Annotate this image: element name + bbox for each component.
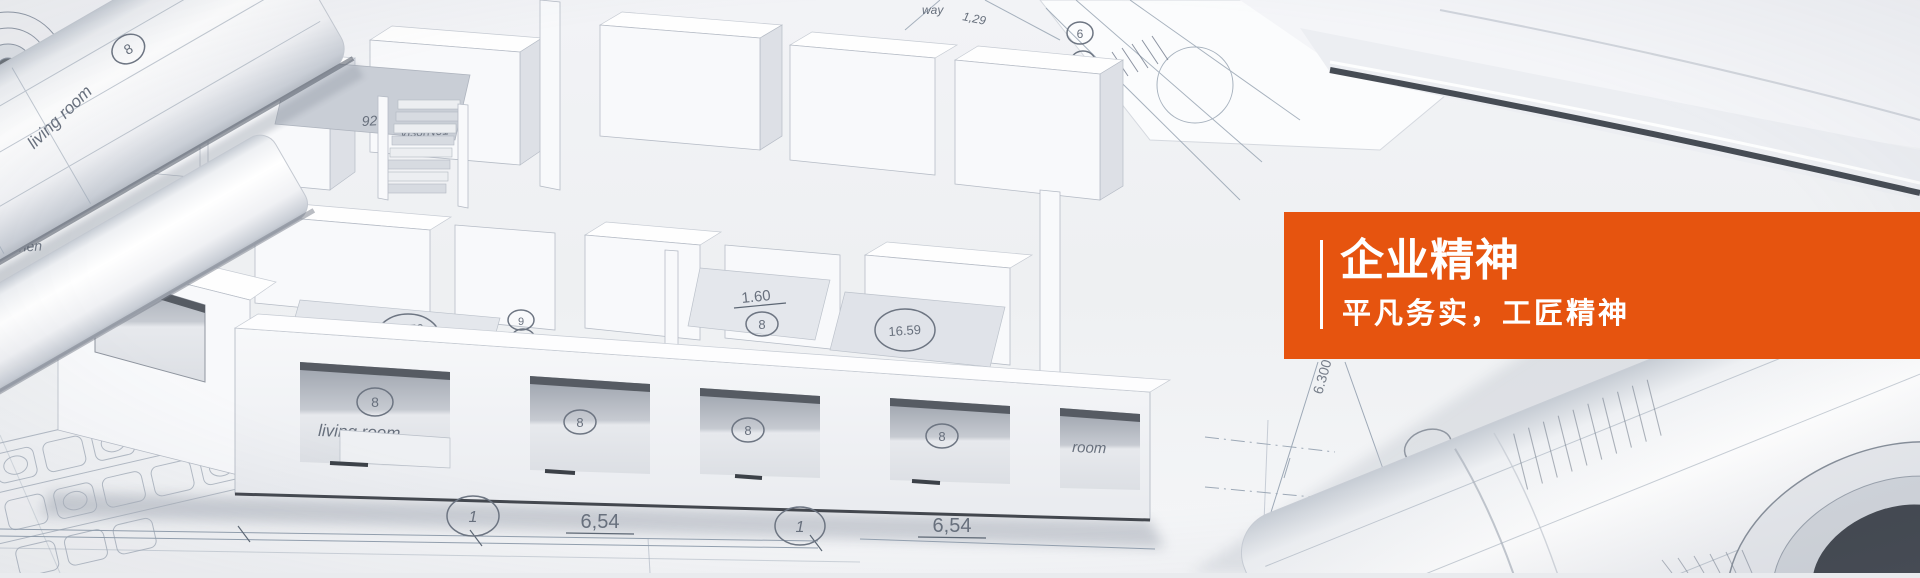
banner-subtitle: 平凡务实，工匠精神 <box>1342 300 1630 329</box>
banner-title: 企业精神 <box>1340 239 1520 283</box>
banner-divider <box>1320 240 1323 329</box>
spirit-banner: 企业精神 平凡务实，工匠精神 <box>1284 212 1920 359</box>
